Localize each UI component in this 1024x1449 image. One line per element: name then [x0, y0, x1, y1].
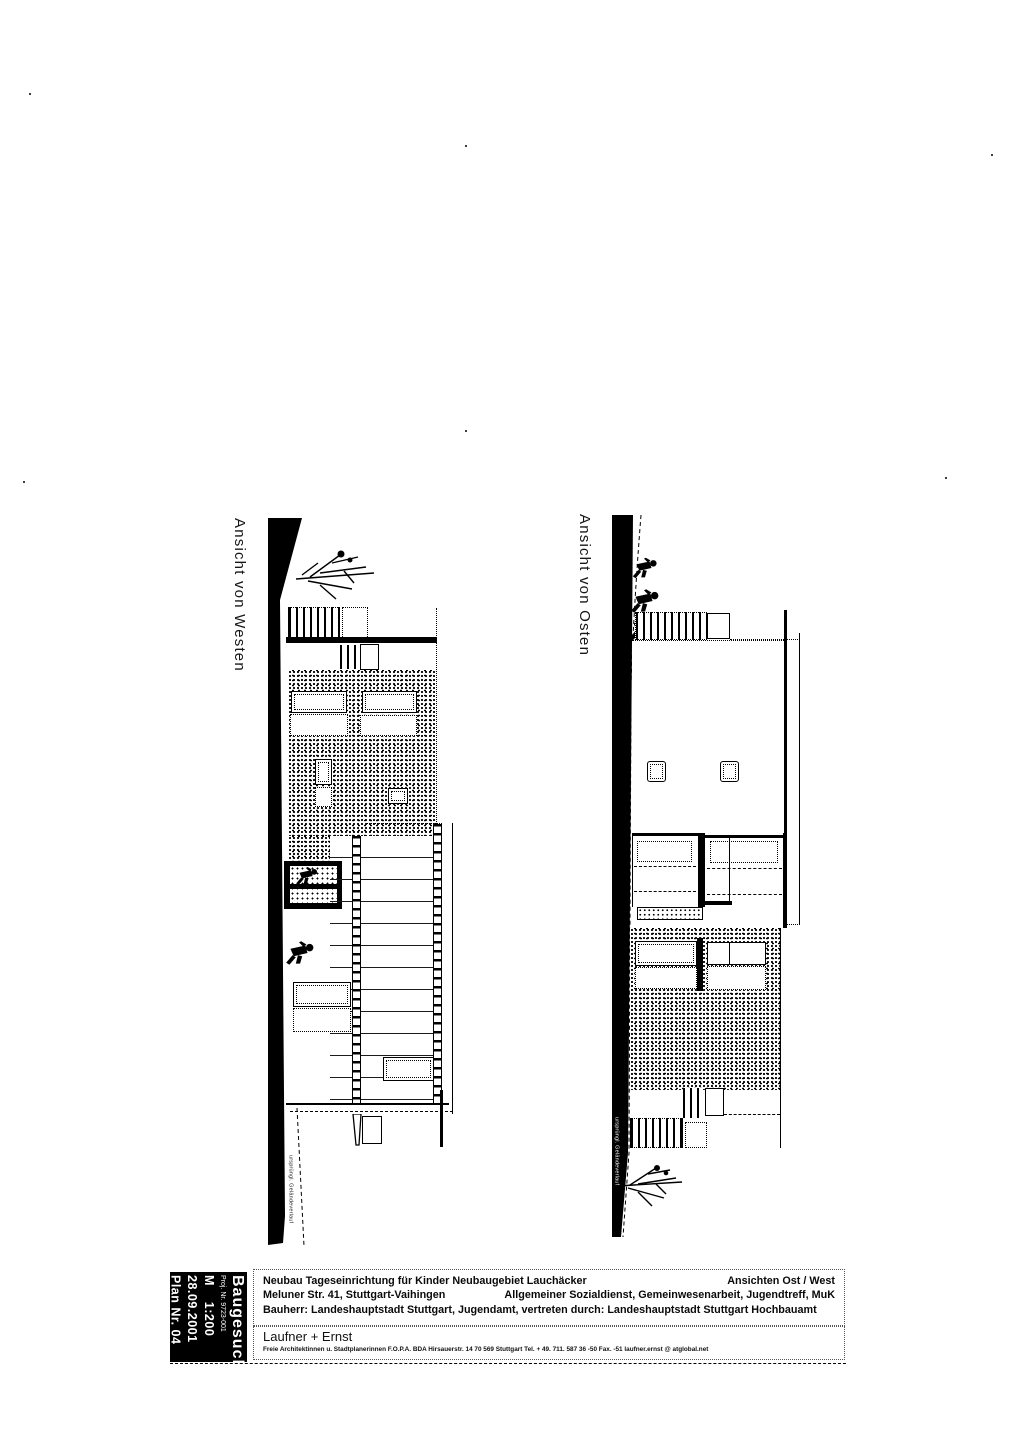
window-pane — [637, 841, 692, 862]
west-outer-post — [452, 823, 453, 1114]
east-base-box — [705, 1088, 724, 1116]
architect-details: Freie Architektinnen u. Stadtplanerinnen… — [263, 1346, 835, 1353]
window — [315, 759, 332, 785]
west-ground-note: ursprüngl. Geländeverlauf — [287, 1155, 293, 1247]
stamp-plan-no: Plan Nr. 04 — [166, 1275, 183, 1359]
stamp-title: Baugesuch — [228, 1275, 245, 1359]
west-rail-top-line — [366, 823, 442, 824]
west-stair-rail — [352, 836, 361, 1104]
window — [383, 1057, 434, 1081]
scan-speck — [991, 154, 993, 156]
east-roof-box — [707, 613, 730, 639]
window-pane — [710, 841, 778, 863]
west-base-line-2 — [290, 1111, 453, 1112]
east-edge-post — [783, 833, 787, 928]
west-base-line — [286, 1103, 449, 1105]
tree-sketch — [616, 1160, 686, 1214]
window-panel — [315, 787, 332, 807]
east-elevation-label: Ansicht von Osten — [576, 514, 593, 664]
window — [388, 788, 408, 804]
west-facade-strip — [288, 836, 330, 862]
window-pane — [296, 985, 348, 1004]
west-support-leg — [362, 1116, 382, 1144]
east-corner-line — [784, 924, 800, 925]
east-outer-line — [780, 928, 781, 1148]
window — [707, 942, 766, 965]
west-elevation-label: Ansicht von Westen — [231, 518, 248, 678]
west-roof-band — [286, 637, 437, 643]
east-louver-band — [635, 612, 707, 640]
person-figure — [292, 867, 320, 885]
west-stair-rail — [433, 824, 442, 1105]
window-pane — [386, 1060, 431, 1078]
title-block-bottom-line — [170, 1363, 846, 1364]
west-louver-band — [288, 607, 340, 639]
east-facade-upper — [632, 640, 786, 833]
east-roof-line — [730, 639, 800, 640]
east-sill-bar — [705, 901, 732, 905]
scan-speck — [29, 93, 31, 95]
stamp-project-no: Proj. Nr. 9723-001 — [217, 1275, 228, 1359]
window — [647, 761, 666, 782]
project-address: Meluner Str. 41, Stuttgart-Vaihingen — [263, 1288, 445, 1302]
window — [362, 691, 417, 713]
tree-sketch — [294, 543, 378, 607]
glazing-line — [634, 891, 696, 892]
mullion-line — [729, 943, 730, 964]
window-pane — [650, 764, 663, 779]
architect-block: Laufner + Ernst Freie Architektinnen u. … — [253, 1326, 845, 1360]
west-louver-small — [340, 645, 357, 669]
glazing-line — [707, 868, 782, 869]
east-outer-line — [799, 633, 800, 925]
window-panel — [635, 967, 697, 989]
window-pane — [318, 762, 329, 782]
west-door — [360, 644, 379, 670]
east-pier — [698, 833, 705, 907]
east-louver-base — [630, 1118, 683, 1148]
glazing-line — [707, 894, 782, 895]
east-sill-band — [637, 907, 703, 920]
project-client: Bauherr: Landeshauptstadt Stuttgart, Jug… — [263, 1303, 817, 1317]
window-panel — [293, 1008, 351, 1032]
west-corner-post — [440, 1090, 443, 1147]
person-figure — [630, 556, 658, 580]
window-panel — [290, 714, 348, 736]
architect-name: Laufner + Ernst — [263, 1329, 835, 1344]
glazing-line — [634, 866, 696, 867]
scan-speck — [945, 477, 947, 479]
title-block: Neubau Tageseinrichtung für Kinder Neuba… — [253, 1269, 845, 1326]
window-panel — [707, 966, 766, 990]
scan-speck — [465, 145, 467, 147]
east-ground-note: ursprüngl. Geländeverlauf — [613, 1117, 619, 1209]
stamp-scale: M 1:200 — [200, 1275, 217, 1359]
east-pier — [697, 938, 703, 991]
east-louver-small — [683, 1088, 703, 1118]
window-pane — [294, 694, 344, 710]
scan-speck — [23, 481, 25, 483]
person-figure — [628, 589, 660, 613]
window-panel — [360, 715, 417, 736]
person-figure — [283, 941, 315, 965]
project-title: Neubau Tageseinrichtung für Kinder Neuba… — [263, 1274, 587, 1288]
window-pane — [365, 694, 414, 710]
window-pane — [638, 944, 694, 963]
east-base-line — [724, 1114, 780, 1115]
window-pane — [723, 764, 736, 779]
west-original-ground-line — [294, 1108, 308, 1248]
approval-stamp: Baugesuch Proj. Nr. 9723-001 M 1:200 28.… — [170, 1272, 247, 1362]
scan-speck — [465, 430, 467, 432]
plan-sheet: Ansicht von Westen — [0, 0, 1024, 1449]
east-base-panel — [685, 1122, 707, 1148]
window-pane — [391, 791, 405, 801]
window — [720, 761, 739, 782]
project-usage: Allgemeiner Sozialdienst, Gemeinwesenarb… — [504, 1288, 835, 1302]
west-roof-box — [342, 607, 368, 639]
sheet-name: Ansichten Ost / West — [727, 1274, 835, 1288]
window — [635, 941, 697, 966]
east-edge-post — [784, 610, 787, 834]
stamp-date: 28.09.2001 — [183, 1275, 200, 1359]
window — [291, 691, 347, 713]
window — [293, 982, 351, 1007]
